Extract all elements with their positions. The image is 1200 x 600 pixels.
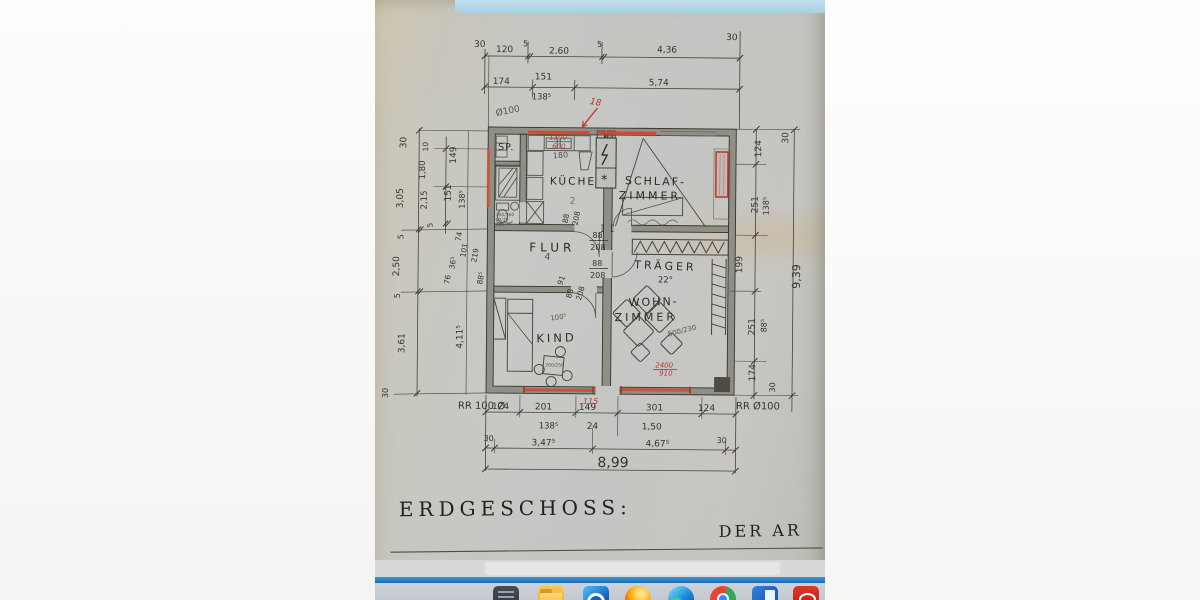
photo-background-right (825, 0, 1200, 600)
room-label-wohn-2: ZIMMER (615, 311, 677, 325)
dim-label: 149 (579, 403, 597, 413)
dim-label: 9,39 (790, 264, 803, 289)
screen-photo: * 18 (0, 0, 1200, 600)
sheet-title: ERDGESCHOSS: (399, 495, 632, 521)
dim-label: 3,05 (396, 188, 406, 208)
horizontal-scrollbar[interactable] (485, 562, 780, 575)
door-dim: 208 (590, 243, 605, 252)
dim-label: 149 (449, 146, 459, 164)
dim-label: 101 (458, 242, 469, 258)
dim-label: 2,60 (549, 47, 569, 57)
red-note-sofa-h: 910 (659, 369, 673, 377)
windows-taskbar (375, 583, 825, 600)
dim-label: 5,74 (649, 78, 669, 88)
dim-label: 5 (523, 39, 528, 48)
door-dim: 88 (592, 259, 602, 268)
dim-label: 1,80 (418, 160, 428, 179)
dim-label: 2,50 (392, 256, 402, 276)
room-label-schlaf-2: ZIMMER (619, 189, 681, 203)
fixture-note: 296 (495, 222, 504, 228)
dim-label: 138⁵ (762, 197, 771, 216)
sheet-signature: DER AR (718, 521, 802, 541)
radiator (716, 152, 728, 197)
dim-label: 174 (493, 77, 511, 87)
acrobat-icon[interactable] (793, 586, 819, 600)
dim-label: 4,67⁵ (646, 439, 670, 449)
dim-label: 5 (396, 234, 405, 239)
door-dim: 208 (590, 271, 605, 280)
door-dim: 88 (561, 213, 572, 224)
dim-label: 120 (496, 45, 514, 55)
room-label-flur: FLUR (529, 240, 575, 254)
stairs-ladder (712, 259, 727, 335)
word-icon[interactable] (752, 586, 778, 600)
dim-label: 174 (748, 364, 758, 382)
pipe-note: Ø100 (495, 103, 521, 119)
dim-label: 30 (768, 382, 777, 392)
dim-label: 5 (393, 293, 402, 298)
dim-label: 24 (587, 422, 599, 432)
chrome-icon[interactable] (710, 586, 736, 600)
dim-label: 151 (444, 184, 454, 201)
red-note-sofa-w: 2400 (655, 361, 673, 369)
wall-pier (714, 377, 730, 392)
note-2: 2 (570, 197, 576, 207)
dim-label: 301 (646, 403, 663, 413)
dim-label: 151 (535, 72, 552, 82)
edge-icon[interactable] (668, 586, 694, 600)
vent-star-icon: * (601, 173, 608, 188)
dim-label: 10 (421, 142, 430, 152)
dim-label: 124 (754, 140, 764, 158)
room-label-sp: SP. (498, 142, 514, 153)
dim-label: 138⁵ (532, 92, 552, 102)
firefox-icon[interactable] (625, 586, 651, 600)
dim-label: 30 (717, 436, 727, 445)
door-dim: 88 (592, 231, 602, 240)
room-label-traeger: TRÄGER (633, 258, 697, 274)
note-4: 4 (544, 252, 551, 264)
dim-label: 138⁵ (458, 190, 467, 209)
floorplan-drawing: * 18 (375, 0, 825, 577)
viewer-bottom-strip (375, 560, 825, 577)
dim-label: 3,61 (397, 333, 407, 353)
dim-label: 219 (469, 247, 480, 263)
rr-note-right: RR Ø100 (736, 400, 780, 412)
total-width-label: 8,99 (597, 455, 628, 471)
dim-label: 88⁵ (475, 271, 486, 285)
door-dim: 91 (555, 274, 567, 286)
dim-label: 74 (453, 231, 464, 242)
app-grid-icon[interactable] (493, 586, 519, 600)
dim-label: 30 (726, 33, 738, 43)
red-note-18: 18 (589, 97, 602, 109)
dim-label: 124 (698, 404, 716, 414)
dim-label: 88⁵ (760, 319, 769, 332)
dim-label: 30 (399, 136, 409, 148)
red-note-sink-h: 600 (552, 143, 566, 151)
dim-label: 5 (425, 222, 434, 227)
room-label-kueche: KÜCHE (550, 175, 596, 188)
dim-label: 251 (748, 318, 758, 335)
dim-label: 201 (535, 402, 552, 412)
dim-label: 30 (474, 40, 486, 50)
dim-label: 3,47⁵ (532, 438, 556, 448)
file-explorer-icon[interactable] (538, 586, 564, 600)
dim-label: 4,36 (657, 45, 677, 55)
door-dim: 208 (571, 210, 582, 226)
dim-label: 124 (492, 402, 510, 412)
dim-label: 4,11⁵ (455, 325, 465, 349)
dim-label: 30 (484, 434, 494, 443)
note-180: 180 (553, 150, 569, 160)
dim-label: 2,15 (420, 190, 430, 209)
dim-label: 251 (751, 196, 761, 213)
room-label-wohn-1: WOHN- (629, 295, 679, 309)
room-label-kind: KIND (536, 330, 577, 345)
table-note: 200/256 (545, 362, 564, 368)
beam-note: 22° (658, 275, 673, 285)
outlook-icon[interactable] (583, 586, 609, 600)
sheet-border-line (391, 544, 823, 556)
note-100: 100⁵ (550, 312, 567, 322)
dim-label: 36⁵ (447, 256, 458, 270)
chimney: * (596, 131, 616, 188)
dim-label: 5 (597, 40, 602, 49)
dim-label: 30 (781, 132, 791, 144)
photo-background-left (0, 0, 375, 600)
dim-label: 30 (381, 388, 390, 398)
dim-label: 199 (735, 256, 745, 274)
dim-label: 138⁵ (539, 421, 559, 431)
room-label-schlaf-1: SCHLAF- (625, 174, 686, 189)
note-sofa: 500/230 (667, 323, 697, 338)
dim-label: 76 (442, 274, 453, 285)
dim-label: 1,50 (642, 422, 662, 432)
beam (632, 239, 728, 255)
